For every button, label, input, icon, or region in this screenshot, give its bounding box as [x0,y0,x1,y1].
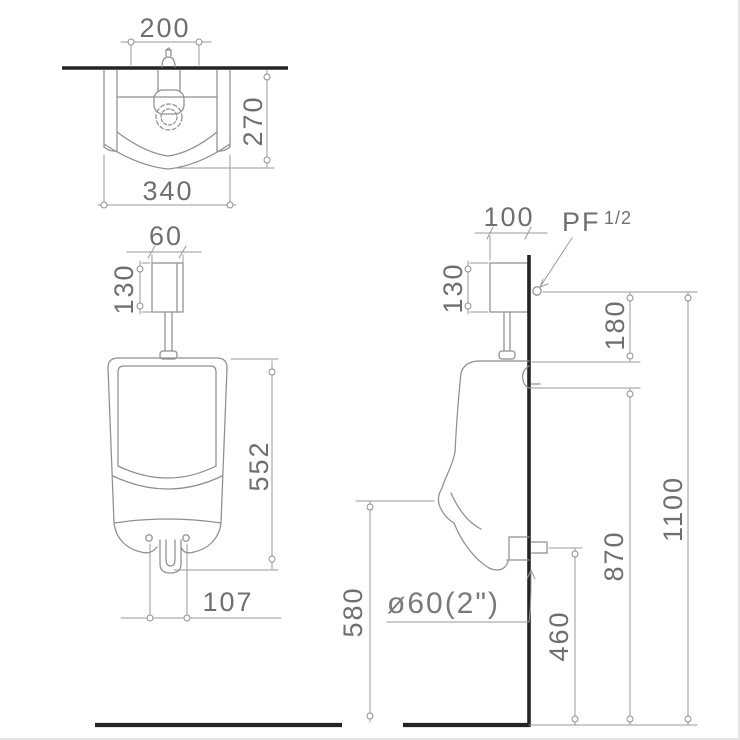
plan-front-curve-outer [104,144,230,169]
front-view: 60 130 [108,221,281,621]
arrow-dot [269,369,275,375]
arrow-dot [572,551,578,557]
bolt-hole-left [146,535,152,541]
arrow-dot [627,353,633,359]
dim-label-580: 580 [338,586,368,637]
leader-line [540,238,572,287]
body-right-edge [221,368,227,523]
dim-valve-depth: 100 [475,202,547,260]
arrow-dot [264,74,270,80]
skirt-top-edge [114,519,221,523]
arrow-dot [227,202,233,208]
dim-label-60: 60 [149,221,183,251]
trap-inner [166,540,175,566]
urinal-dimension-drawing: 200 270 340 60 [0,0,740,740]
plan-front-curve-inner [117,132,217,156]
dim-label-460: 460 [544,610,574,661]
arrow-dot [367,504,373,510]
dim-label-100: 100 [483,202,534,232]
dim-outlet-height: 460 [544,548,582,725]
extension-lines [152,255,183,262]
outlet-callout: ø60(2") [387,570,535,622]
outlet-label: ø60(2") [387,587,500,620]
dim-width: 340 [98,155,236,208]
technical-drawing-page: 200 270 340 60 [0,0,740,740]
drain-box [507,537,529,560]
dim-label-130-front: 130 [109,263,139,314]
dim-label-340: 340 [142,176,193,206]
valve-body [490,263,528,312]
top-edge [461,361,529,373]
arrow-dot [101,202,107,208]
front-face [455,373,461,452]
extension-lines [470,263,488,312]
supply-point [533,287,541,295]
arrow-dot [367,713,373,719]
arrow-dot [128,39,134,45]
arrow-dot [184,615,190,621]
arrow-dot [627,391,633,397]
arrow-dot [269,556,275,562]
extension-lines [131,45,199,65]
trap-outer [160,540,181,573]
dim-depth: 270 [175,70,274,168]
dim-label-180: 180 [600,299,630,350]
dim-valve-width: 60 [127,221,201,262]
dim-label-1100: 1100 [658,476,688,542]
flush-valve-front [152,263,183,359]
dim-label-870: 870 [599,530,629,581]
arrow-dot [147,615,153,621]
dim-hanger-height: 870 [530,388,640,725]
front-lip [438,452,455,523]
dim-label-200: 200 [139,13,190,43]
skirt-left-wing [114,523,157,553]
plan-spreader-ring-inner [161,109,177,125]
arrow-dot [196,39,202,45]
dim-label-270: 270 [238,95,268,146]
valve-body [152,263,183,312]
flush-pipe [165,312,172,351]
supply-label-pf: PF [562,207,601,237]
plan-spreader-ring-outer [156,104,182,130]
dim-label-107: 107 [202,587,253,617]
pipe-flange [499,351,515,359]
dim-label-130-side: 130 [438,262,468,313]
dim-supply-height: 1100 [658,292,691,725]
supply-label-half: 1/2 [604,208,632,228]
dim-bolt-spacing: 107 [121,587,281,621]
bolt-hole-right [183,535,189,541]
dim-supply-to-rim: 180 [532,292,697,362]
arrow-dot [627,716,633,722]
flush-pipe [504,312,510,351]
flush-valve-side [490,263,528,359]
bowl-curve-upper [118,466,216,478]
inner-bowl-line [451,493,481,529]
extension-lines [142,263,160,312]
top-view: 200 270 340 [62,13,288,208]
plan-spud-stem [166,50,171,56]
dim-valve-height-side: 130 [438,261,488,314]
arrow-dot [685,295,691,301]
underside [454,523,508,570]
side-view: 100 PF 1/2 130 [95,202,697,727]
plan-spud-base [162,57,175,67]
body-left-edge [108,368,114,523]
dim-label-552: 552 [244,440,274,491]
supply-callout: PF 1/2 [533,207,632,295]
plan-body-outline [104,48,230,169]
arrow-dot [685,716,691,722]
arrow-dot [264,157,270,163]
arrow-dot [572,716,578,722]
urinal-body-front [108,358,227,615]
outlet-spud [531,542,547,553]
inner-rim [118,366,216,466]
